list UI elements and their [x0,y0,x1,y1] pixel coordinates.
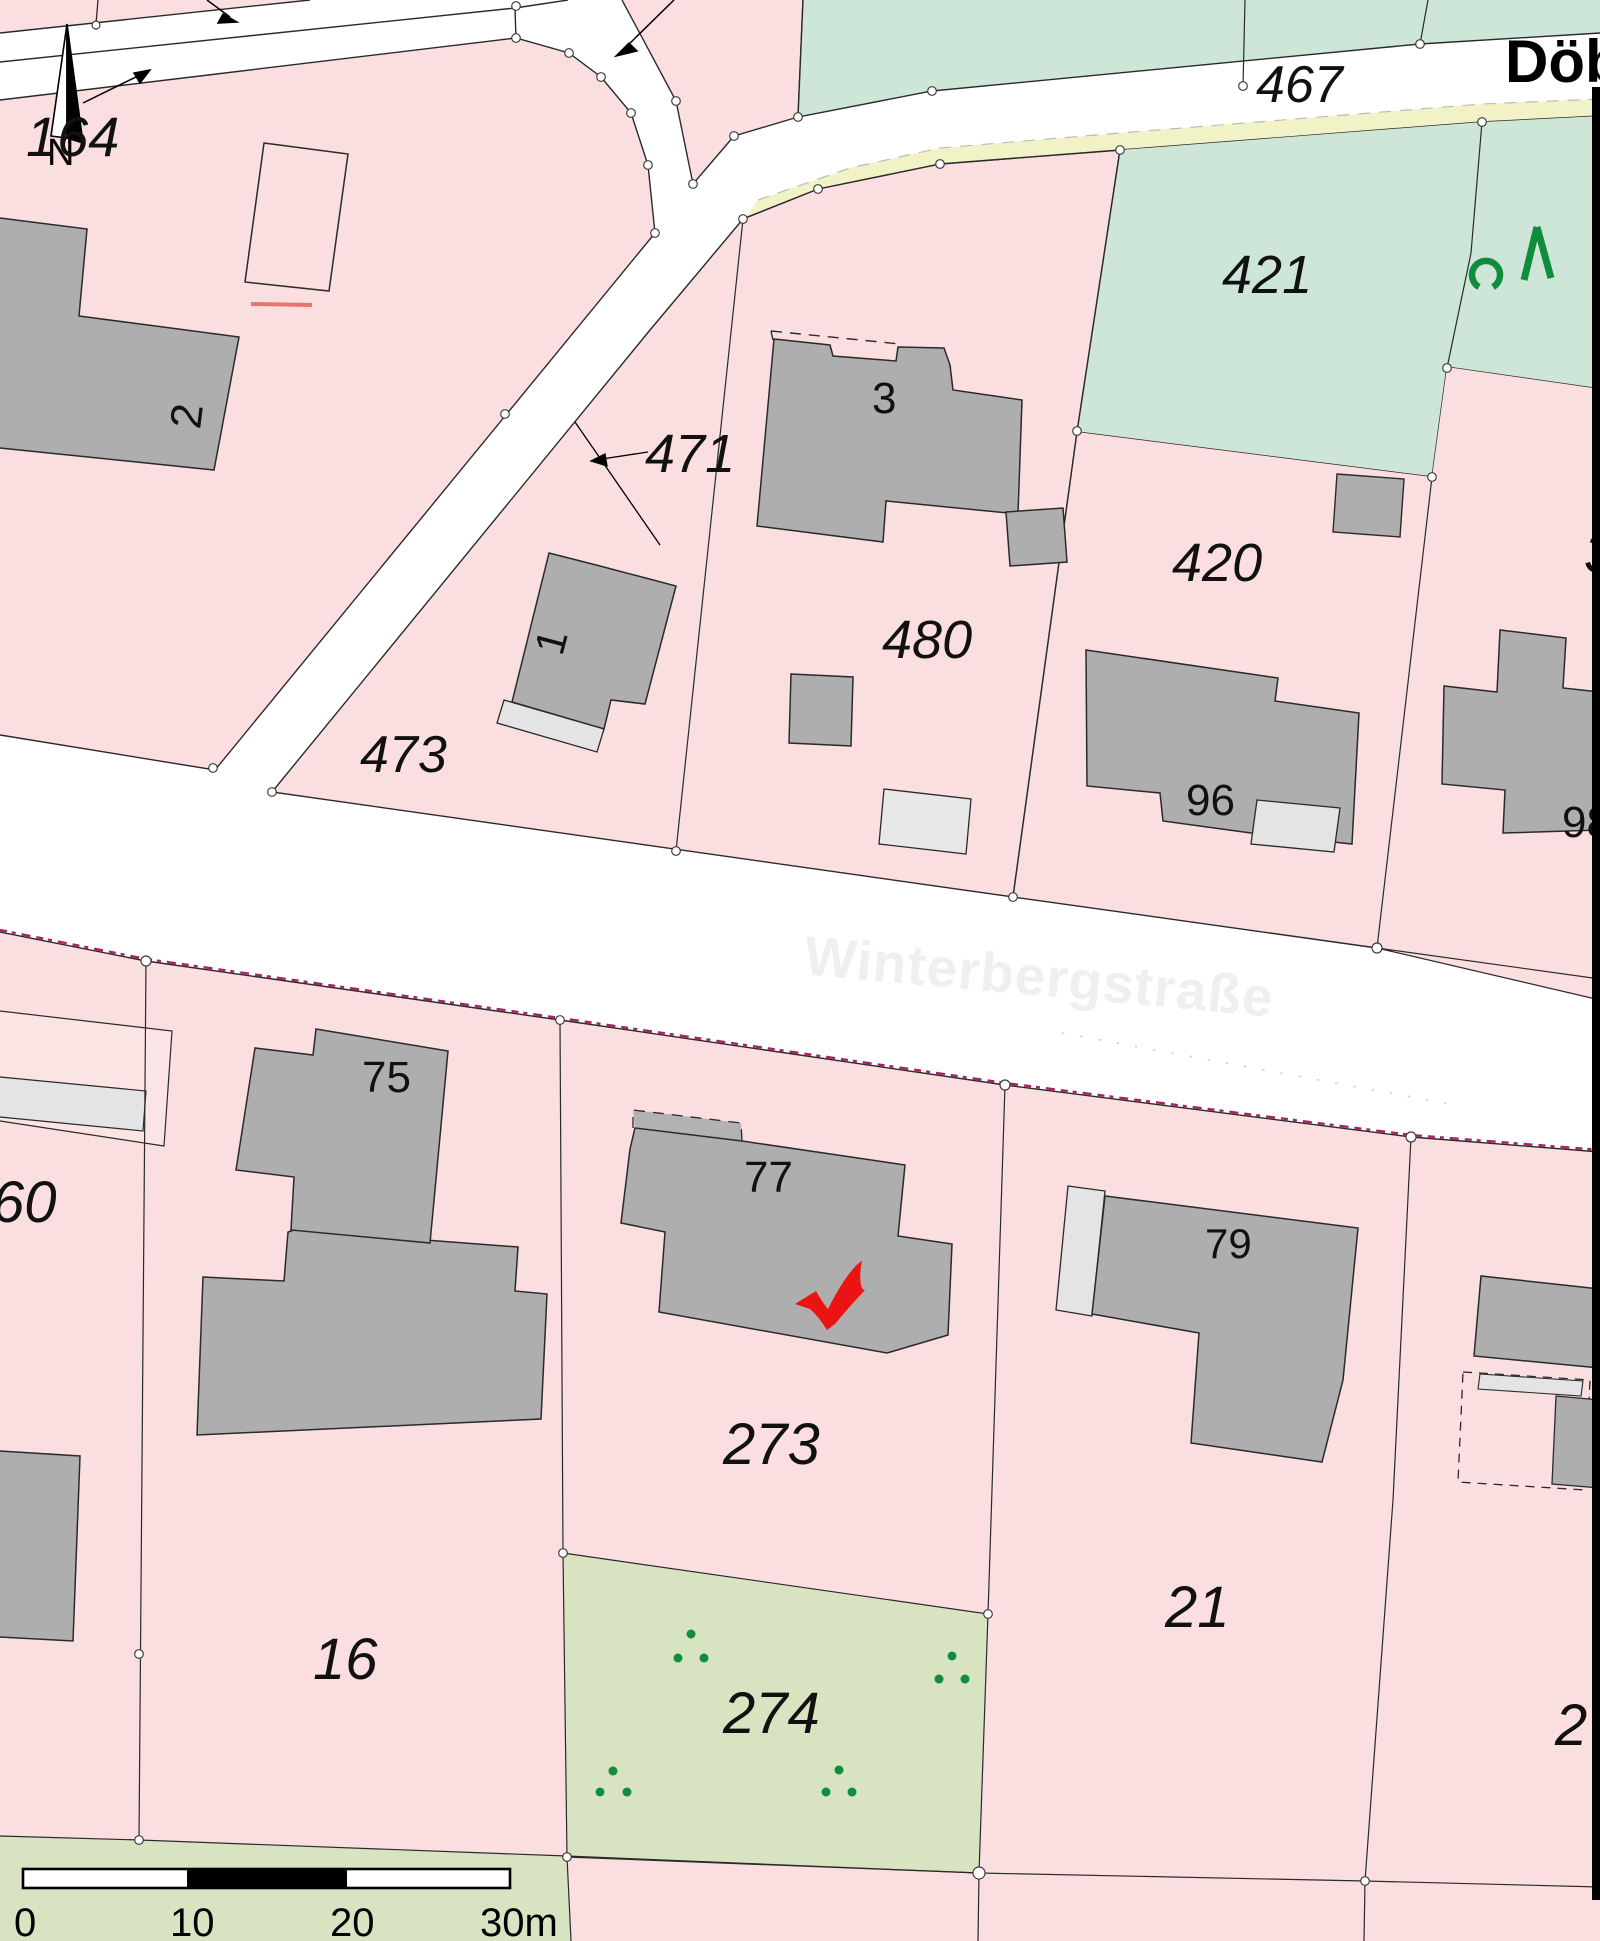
svg-text:21: 21 [1164,1575,1230,1640]
svg-text:164: 164 [26,105,119,168]
svg-text:421: 421 [1222,245,1312,305]
svg-text:273: 273 [722,1412,820,1477]
svg-text:10: 10 [170,1901,215,1941]
svg-text:274: 274 [722,1681,820,1746]
svg-text:75: 75 [362,1053,411,1102]
svg-text:30m: 30m [480,1901,558,1941]
svg-text:20: 20 [330,1901,375,1941]
svg-text:96: 96 [1186,776,1235,825]
svg-text:16: 16 [313,1627,378,1692]
svg-text:480: 480 [882,610,972,670]
svg-text:420: 420 [1172,533,1262,593]
svg-text:79: 79 [1205,1220,1252,1267]
svg-text:77: 77 [744,1153,793,1202]
svg-text:0: 0 [14,1901,36,1941]
svg-text:467: 467 [1256,56,1345,114]
svg-text:60: 60 [0,1170,57,1235]
svg-text:471: 471 [645,424,735,484]
svg-text:Döbe: Döbe [1505,28,1600,95]
svg-text:473: 473 [360,726,447,784]
svg-text:3: 3 [872,374,896,423]
